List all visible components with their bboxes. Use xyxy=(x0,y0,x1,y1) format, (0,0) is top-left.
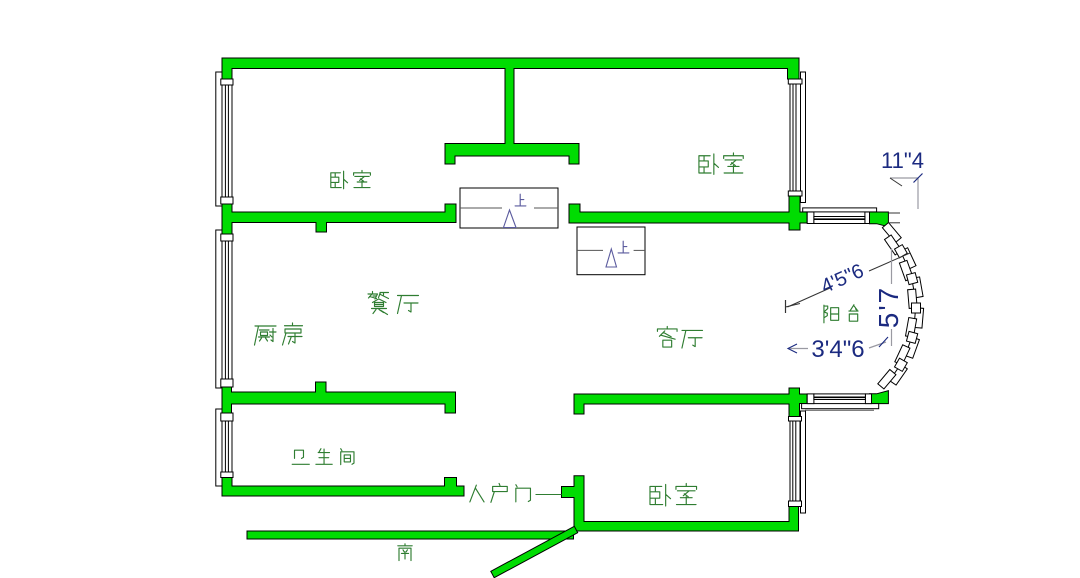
svg-text:4'5"6: 4'5"6 xyxy=(818,260,867,298)
svg-text:11"4: 11"4 xyxy=(881,148,924,173)
svg-text:3'4"6: 3'4"6 xyxy=(811,336,864,363)
svg-text:5'7: 5'7 xyxy=(873,286,904,329)
